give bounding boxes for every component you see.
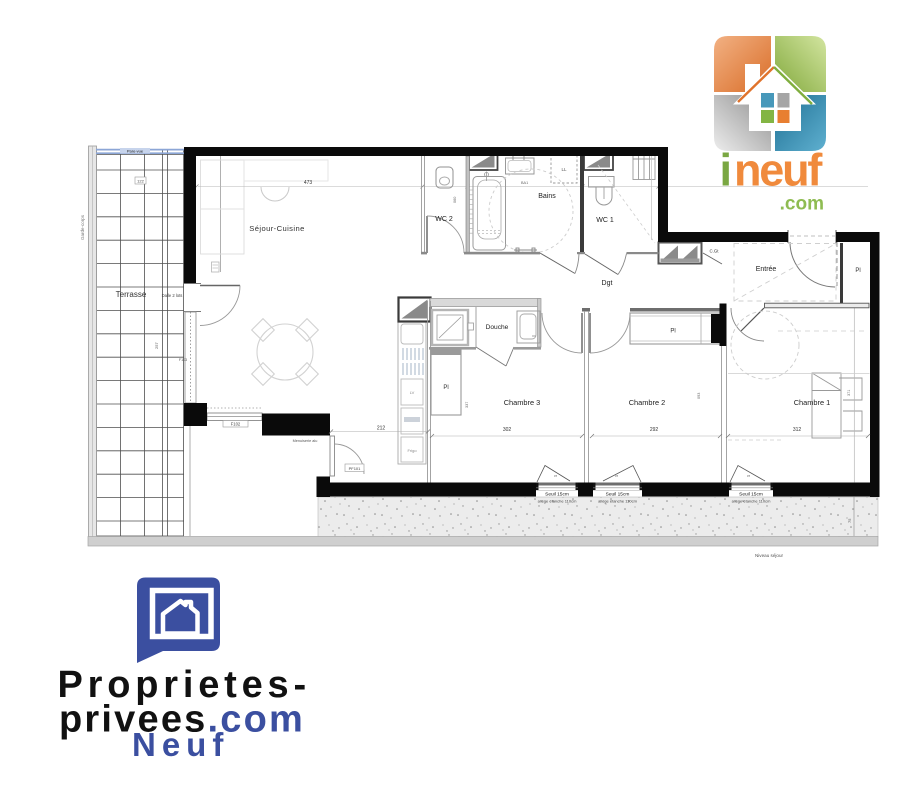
- svg-text:Garde-corps: Garde-corps: [80, 214, 85, 240]
- svg-text:Menuiserie alu: Menuiserie alu: [293, 439, 318, 443]
- svg-text:Pl: Pl: [855, 268, 860, 274]
- svg-text:337: 337: [465, 402, 469, 408]
- svg-text:371: 371: [847, 390, 851, 396]
- svg-text:257: 257: [154, 342, 159, 349]
- svg-text:allège étanche 110cm: allège étanche 110cm: [732, 498, 772, 503]
- svg-text:LL: LL: [561, 167, 567, 172]
- svg-text:F103: F103: [179, 358, 187, 362]
- svg-text:WC 1: WC 1: [596, 217, 614, 224]
- svg-text:Séjour-Cuisine: Séjour-Cuisine: [249, 224, 304, 233]
- svg-text:060: 060: [453, 197, 457, 203]
- svg-text:allège étanche 110cm: allège étanche 110cm: [598, 498, 638, 503]
- svg-text:212: 212: [377, 426, 386, 432]
- svg-text:Seuil 15cm: Seuil 15cm: [545, 492, 569, 498]
- svg-text:122: 122: [137, 178, 144, 183]
- svg-text:Niveau séjour: Niveau séjour: [755, 553, 784, 558]
- svg-text:C.Gt: C.Gt: [709, 249, 719, 254]
- svg-text:Dalle 2 lots: Dalle 2 lots: [162, 293, 183, 298]
- svg-text:Pl: Pl: [670, 329, 675, 335]
- svg-text:F102: F102: [231, 422, 241, 427]
- svg-text:Chambre 2: Chambre 2: [629, 398, 666, 407]
- svg-text:Entrée: Entrée: [756, 266, 777, 273]
- svg-text:312: 312: [793, 427, 802, 433]
- svg-text:Chambre 3: Chambre 3: [504, 398, 541, 407]
- svg-text:Chambre 1: Chambre 1: [794, 398, 831, 407]
- svg-text:Douche: Douche: [486, 324, 509, 331]
- svg-text:allège étanche 110cm: allège étanche 110cm: [538, 498, 578, 503]
- svg-text:Pare-vue: Pare-vue: [127, 149, 144, 154]
- svg-text:Frigo: Frigo: [407, 448, 417, 453]
- svg-text:292: 292: [650, 427, 659, 433]
- svg-text:Neuf: Neuf: [132, 726, 229, 763]
- svg-text:Bains: Bains: [538, 193, 556, 200]
- svg-text:LV: LV: [410, 390, 415, 395]
- svg-text:.com: .com: [780, 194, 824, 215]
- svg-text:093: 093: [697, 393, 701, 399]
- svg-text:i: i: [720, 145, 733, 196]
- svg-text:Seuil 15cm: Seuil 15cm: [739, 492, 763, 498]
- svg-text:Dgt: Dgt: [602, 280, 613, 287]
- svg-text:PF101: PF101: [349, 466, 362, 471]
- svg-text:Pl: Pl: [443, 385, 448, 391]
- svg-text:neuf: neuf: [734, 145, 823, 196]
- svg-text:302: 302: [503, 427, 512, 433]
- svg-text:Seuil 15cm: Seuil 15cm: [606, 492, 630, 498]
- svg-text:Terrasse: Terrasse: [116, 290, 147, 299]
- svg-text:75: 75: [847, 518, 852, 523]
- svg-text:WC 2: WC 2: [435, 216, 453, 223]
- svg-text:473: 473: [304, 180, 313, 186]
- svg-text:BA1: BA1: [521, 181, 528, 185]
